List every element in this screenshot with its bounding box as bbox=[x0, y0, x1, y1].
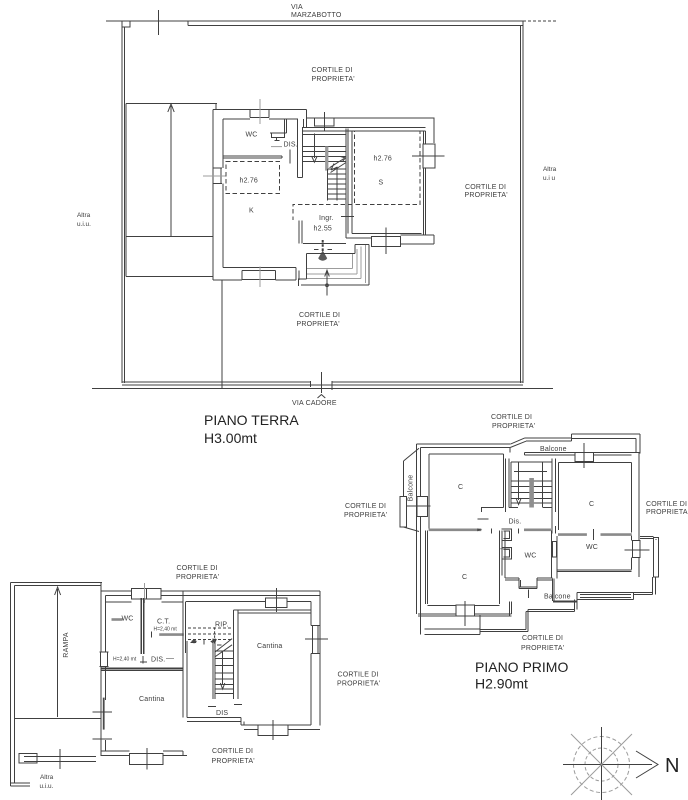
svg-text:h2.55: h2.55 bbox=[314, 226, 333, 233]
svg-text:Altra: Altra bbox=[77, 212, 91, 219]
svg-text:K: K bbox=[249, 208, 254, 215]
svg-text:N: N bbox=[665, 755, 679, 777]
svg-text:PROPRIETA': PROPRIETA' bbox=[212, 758, 255, 765]
svg-text:WC: WC bbox=[525, 553, 537, 560]
svg-text:CORTILE DI: CORTILE DI bbox=[299, 312, 340, 319]
svg-text:S: S bbox=[379, 180, 384, 187]
svg-text:WC: WC bbox=[122, 616, 134, 623]
svg-text:CORTILE DI: CORTILE DI bbox=[177, 565, 218, 572]
svg-text:CORTILE DI: CORTILE DI bbox=[646, 501, 687, 508]
svg-text:CORTILE DI: CORTILE DI bbox=[491, 414, 532, 421]
svg-text:VIA CADORE: VIA CADORE bbox=[292, 400, 337, 407]
svg-text:u.i.u.: u.i.u. bbox=[40, 783, 54, 790]
svg-text:h2.76: h2.76 bbox=[240, 178, 259, 185]
svg-text:CORTILE DI: CORTILE DI bbox=[465, 184, 506, 191]
svg-text:CORTILE DI: CORTILE DI bbox=[338, 672, 379, 679]
svg-text:CORTILE DI: CORTILE DI bbox=[345, 503, 386, 510]
svg-text:PROPRIETA': PROPRIETA' bbox=[297, 321, 340, 328]
svg-text:Dis.: Dis. bbox=[509, 519, 522, 526]
svg-text:CORTILE DI: CORTILE DI bbox=[212, 748, 253, 755]
svg-text:PROPRIETA': PROPRIETA' bbox=[337, 681, 380, 688]
svg-text:DIS: DIS bbox=[216, 710, 228, 717]
svg-text:PROPRIETA': PROPRIETA' bbox=[465, 192, 508, 199]
svg-text:CORTILE DI: CORTILE DI bbox=[312, 67, 353, 74]
svg-text:PROPRIETA': PROPRIETA' bbox=[492, 423, 535, 430]
svg-text:Altra: Altra bbox=[40, 774, 54, 781]
svg-text:PROPRIETA': PROPRIETA' bbox=[344, 512, 387, 519]
svg-text:Cantina: Cantina bbox=[139, 696, 165, 703]
svg-text:C.T.: C.T. bbox=[157, 619, 170, 626]
svg-text:H=2,40 mt: H=2,40 mt bbox=[113, 657, 137, 663]
svg-text:PROPRIETA': PROPRIETA' bbox=[521, 645, 564, 652]
svg-text:H=2,40 mt: H=2,40 mt bbox=[154, 627, 178, 633]
svg-text:PROPRIETA': PROPRIETA' bbox=[646, 509, 688, 516]
svg-text:PROPRIETA': PROPRIETA' bbox=[176, 574, 219, 581]
svg-text:CORTILE DI: CORTILE DI bbox=[522, 635, 563, 642]
svg-text:WC: WC bbox=[246, 132, 258, 139]
svg-text:PIANO TERRA: PIANO TERRA bbox=[204, 412, 299, 428]
svg-text:Altra: Altra bbox=[543, 166, 557, 173]
svg-text:DIS.: DIS. bbox=[284, 142, 298, 149]
svg-text:Balcone: Balcone bbox=[544, 594, 571, 601]
svg-text:VIA: VIA bbox=[291, 4, 303, 11]
svg-text:Balcone: Balcone bbox=[540, 446, 567, 453]
svg-text:MARZABOTTO: MARZABOTTO bbox=[291, 12, 342, 19]
svg-text:Balcone: Balcone bbox=[408, 475, 415, 502]
svg-text:C: C bbox=[458, 484, 463, 491]
svg-text:h2.76: h2.76 bbox=[374, 156, 393, 163]
svg-text:RIP.: RIP. bbox=[215, 622, 229, 629]
svg-text:H3.00mt: H3.00mt bbox=[204, 430, 257, 446]
svg-text:Cantina: Cantina bbox=[257, 643, 283, 650]
svg-text:PROPRIETA': PROPRIETA' bbox=[312, 76, 355, 83]
svg-text:RAMPA: RAMPA bbox=[63, 632, 70, 658]
svg-text:C: C bbox=[589, 501, 594, 508]
svg-text:WC: WC bbox=[586, 544, 598, 551]
svg-text:u.i.u.: u.i.u. bbox=[77, 221, 91, 228]
svg-text:H2.90mt: H2.90mt bbox=[475, 676, 528, 692]
svg-text:DIS.: DIS. bbox=[151, 657, 165, 664]
svg-text:C: C bbox=[462, 574, 467, 581]
svg-text:u.i u: u.i u bbox=[543, 175, 556, 182]
svg-text:Ingr.: Ingr. bbox=[319, 215, 334, 222]
svg-text:PIANO PRIMO: PIANO PRIMO bbox=[475, 659, 568, 675]
